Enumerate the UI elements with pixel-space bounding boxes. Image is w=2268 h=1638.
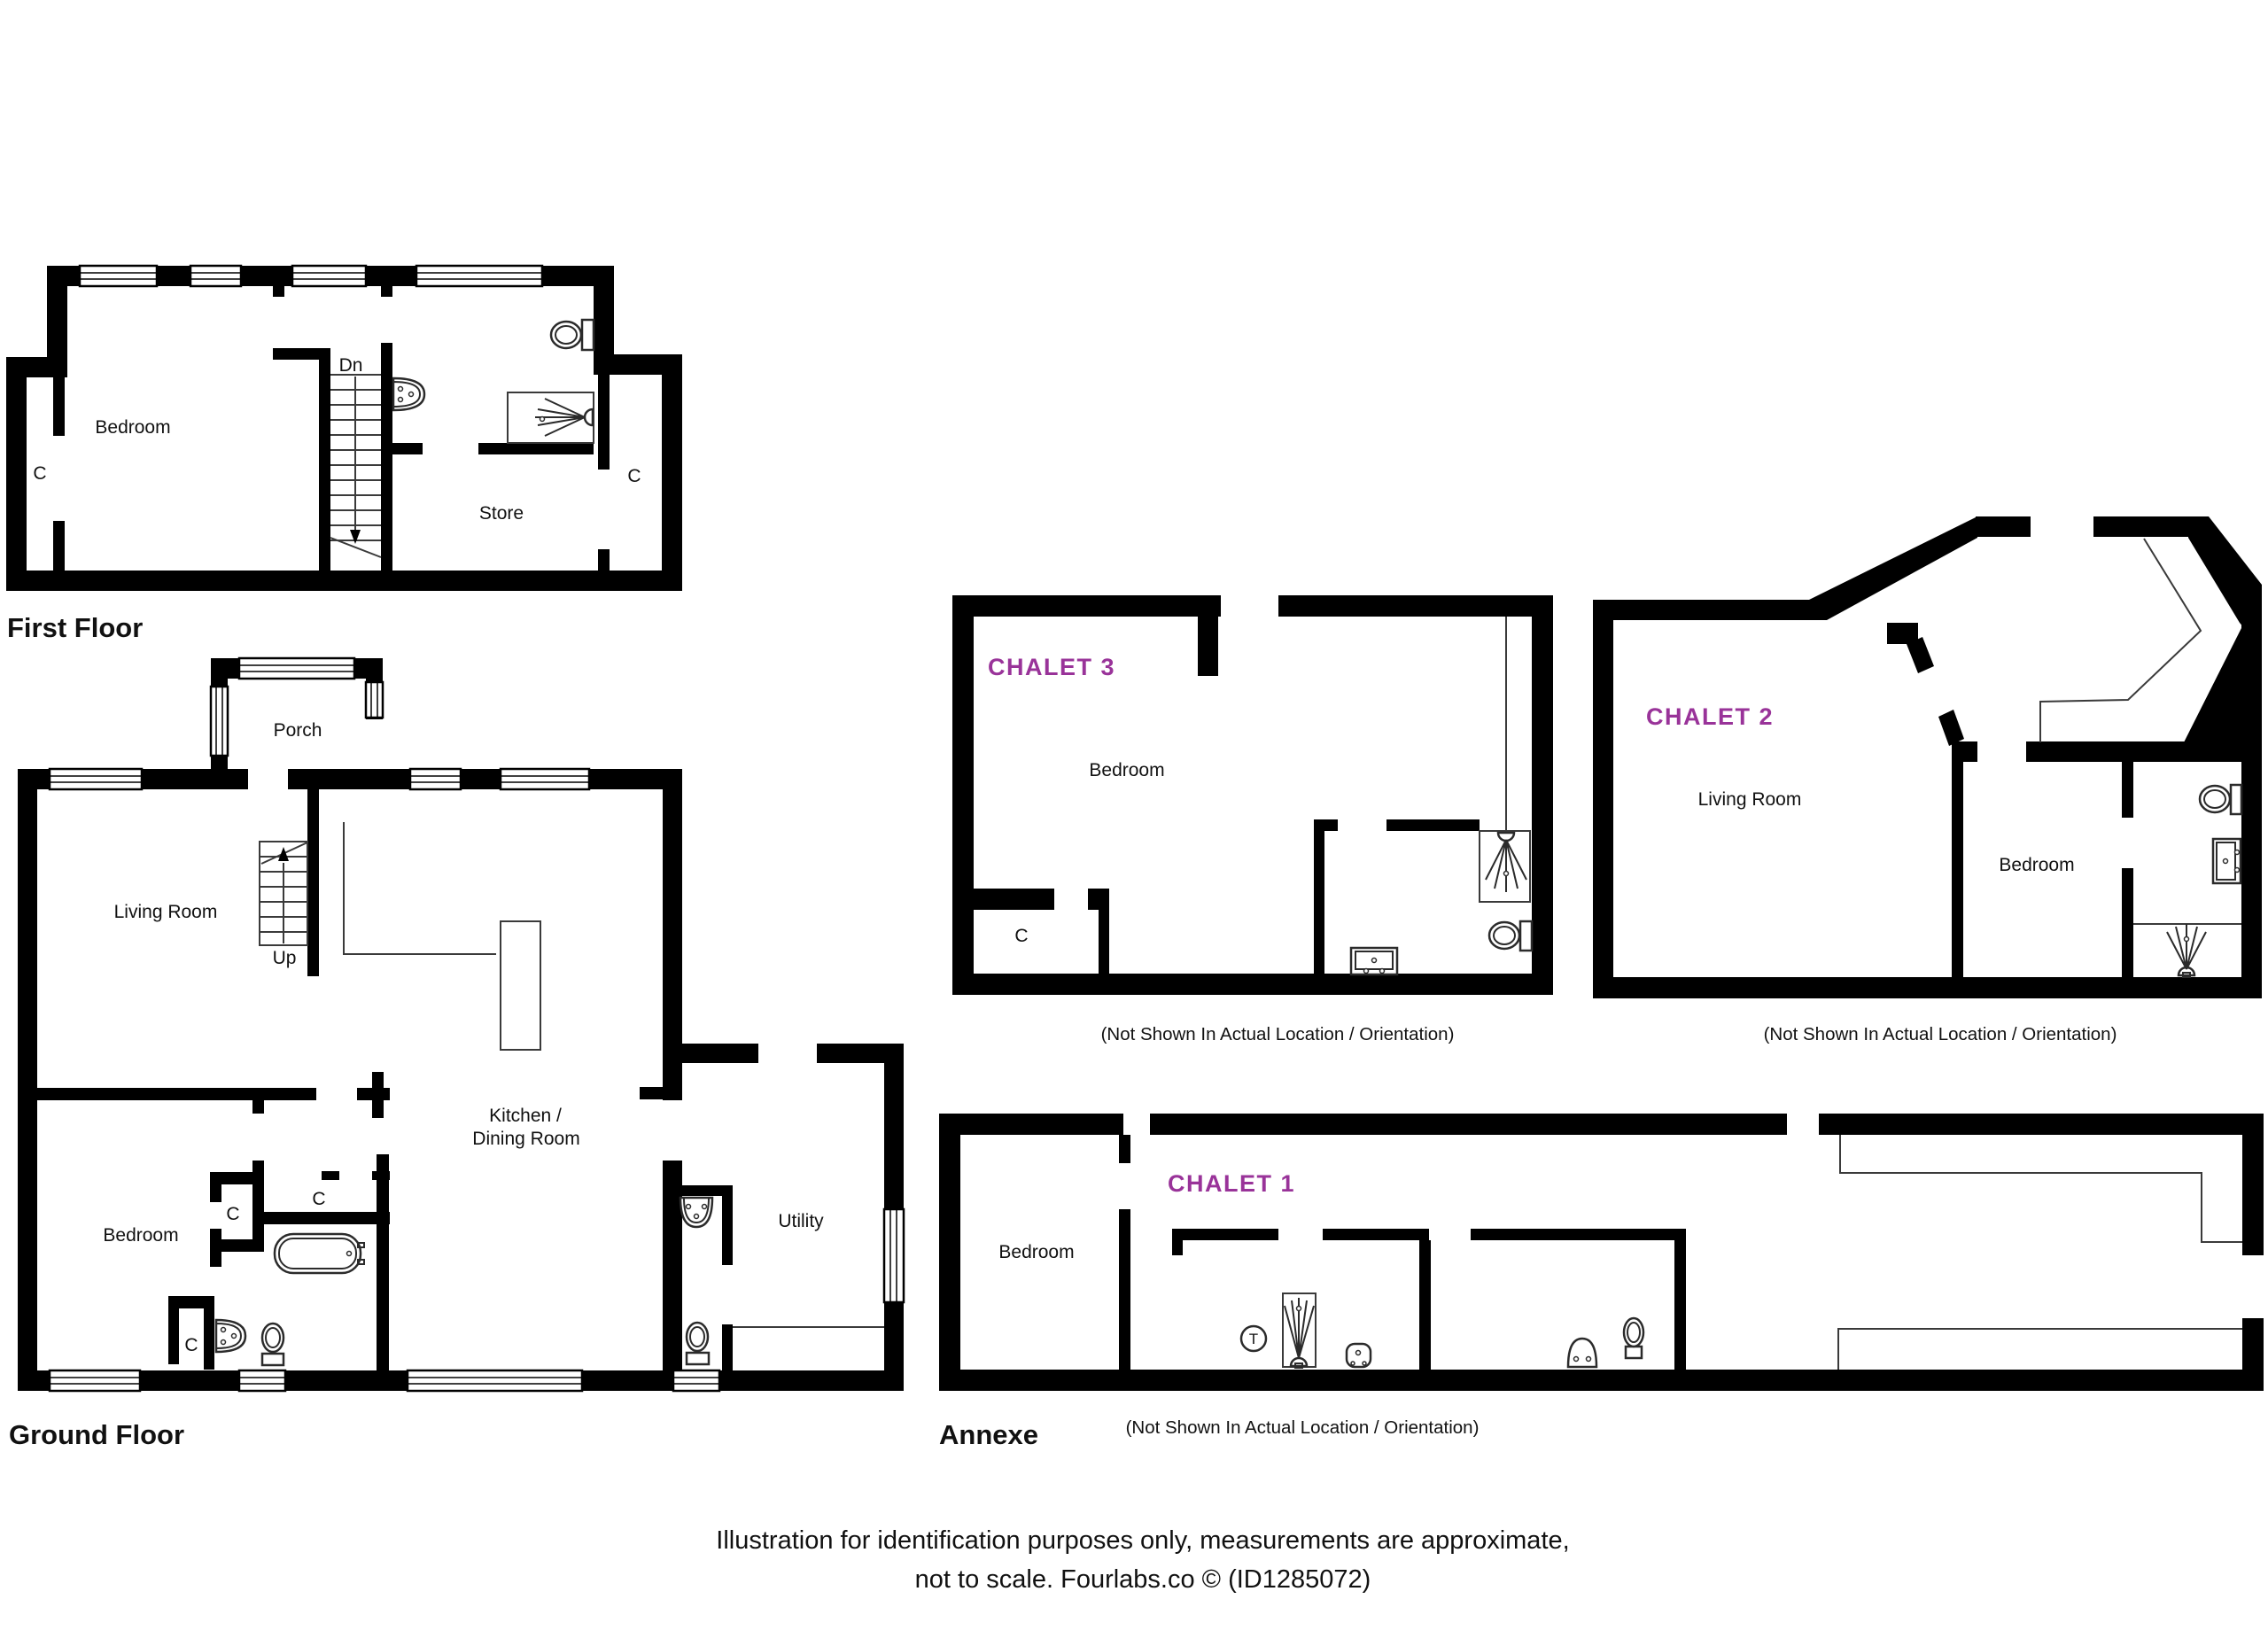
ground-floor-title: Ground Floor bbox=[9, 1419, 184, 1450]
sink-icon bbox=[393, 378, 424, 410]
stairs-up bbox=[260, 842, 307, 945]
annexe-shower-icon bbox=[1283, 1293, 1316, 1368]
first-floor-store-label: Store bbox=[479, 503, 524, 524]
annexe-sink-icon bbox=[1347, 1344, 1371, 1367]
chalet3-sink-icon bbox=[1351, 948, 1397, 974]
chalet3-shower-icon bbox=[1480, 831, 1530, 902]
first-floor-windows bbox=[80, 266, 542, 286]
wc-toilet-icon bbox=[687, 1323, 709, 1364]
footer-disclaimer: Illustration for identification purposes… bbox=[716, 1526, 1569, 1594]
ground-floor-bedroom-label: Bedroom bbox=[103, 1225, 178, 1246]
annexe-tank-label: T bbox=[1249, 1331, 1258, 1347]
first-floor-title: First Floor bbox=[7, 612, 143, 643]
chalet2-caption: (Not Shown In Actual Location / Orientat… bbox=[1764, 1024, 2117, 1044]
shower-icon bbox=[508, 392, 594, 443]
annexe-plan: T CHALET 1 Bedroom (Not Shown In Actual … bbox=[939, 1114, 2264, 1450]
first-floor-closet-left-label: C bbox=[33, 463, 46, 484]
chalet3-plan: CHALET 3 Bedroom C (Not Shown In Actual … bbox=[952, 595, 1553, 1044]
closet-bath-label: C bbox=[184, 1335, 198, 1355]
porch-label: Porch bbox=[274, 720, 322, 741]
utility-label: Utility bbox=[778, 1211, 824, 1231]
chalet3-bedroom-label: Bedroom bbox=[1089, 760, 1164, 780]
chalet2-living-room-label: Living Room bbox=[1698, 789, 1802, 810]
bathroom-toilet-icon bbox=[262, 1324, 283, 1365]
chalet1-label: CHALET 1 bbox=[1168, 1170, 1295, 1197]
footer-line1: Illustration for identification purposes… bbox=[716, 1526, 1569, 1555]
closet-inner-label: C bbox=[312, 1189, 325, 1209]
chalet2-plan: CHALET 2 Living Room Bedroom (Not Shown … bbox=[1593, 516, 2262, 1044]
kitchen-counter-lines bbox=[344, 822, 884, 1327]
annexe-wc-sink-icon bbox=[1568, 1339, 1596, 1367]
chalet2-sink-icon bbox=[2213, 839, 2241, 883]
stairs-up-label: Up bbox=[273, 948, 297, 968]
bathtub-icon bbox=[275, 1234, 364, 1273]
first-floor-closet-right-label: C bbox=[627, 466, 641, 486]
chalet2-shower-icon bbox=[2133, 924, 2241, 977]
living-room-label: Living Room bbox=[114, 902, 218, 922]
chalet2-bedroom-label: Bedroom bbox=[1999, 855, 2074, 875]
chalet2-label: CHALET 2 bbox=[1646, 703, 1774, 730]
annexe-bedroom-label: Bedroom bbox=[998, 1242, 1074, 1262]
first-floor-plan: Bedroom C Dn Store C First Floor bbox=[6, 266, 682, 643]
toilet-icon bbox=[551, 320, 594, 350]
chalet2-walls bbox=[1593, 516, 2262, 998]
chalet3-label: CHALET 3 bbox=[988, 654, 1115, 680]
annexe-title: Annexe bbox=[939, 1419, 1038, 1450]
footer-line2: not to scale. Fourlabs.co © (ID1285072) bbox=[915, 1565, 1371, 1594]
chalet3-toilet-icon bbox=[1489, 921, 1532, 951]
closet-hall-label: C bbox=[226, 1204, 239, 1224]
floorplan-page: Bedroom C Dn Store C First Floor bbox=[0, 0, 2268, 1638]
ground-floor-plan: Porch Living Room Up Kitchen / Dining Ro… bbox=[9, 658, 904, 1450]
first-floor-bedroom-label: Bedroom bbox=[95, 417, 170, 438]
chalet3-caption: (Not Shown In Actual Location / Orientat… bbox=[1101, 1024, 1455, 1044]
kitchen-label-line2: Dining Room bbox=[472, 1129, 579, 1149]
chalet2-toilet-icon bbox=[2200, 785, 2241, 814]
chalet2-bay-glazing bbox=[2040, 539, 2201, 742]
annexe-counter-lines bbox=[1838, 1135, 2242, 1370]
wc-sink-icon bbox=[680, 1198, 712, 1227]
kitchen-label-line1: Kitchen / bbox=[489, 1106, 562, 1126]
first-floor-stairs-label: Dn bbox=[339, 355, 363, 376]
ground-floor-windows bbox=[50, 658, 904, 1391]
stairs-down bbox=[330, 375, 381, 557]
annexe-wc-toilet-icon bbox=[1624, 1318, 1643, 1358]
annexe-walls bbox=[939, 1114, 2264, 1391]
annexe-caption: (Not Shown In Actual Location / Orientat… bbox=[1126, 1417, 1480, 1438]
chalet3-closet-label: C bbox=[1014, 926, 1028, 946]
bathroom-sink-icon bbox=[216, 1320, 245, 1352]
